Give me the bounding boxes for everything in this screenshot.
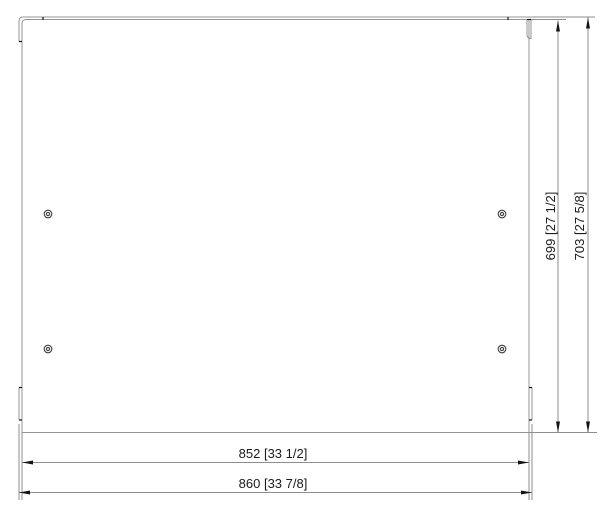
technical-drawing-canvas: 699 [27 1/2] 703 [27 5/8] 852 [33 1/2] 8… [0, 0, 614, 517]
top-flange-outer-edge [19, 17, 533, 42]
screw-hole-top-left [44, 210, 52, 218]
panel-face [22, 20, 529, 433]
dimension-width-inner: 852 [33 1/2] [22, 446, 529, 465]
panel-outline [19, 17, 533, 433]
dimension-width-outer: 860 [33 7/8] [19, 476, 532, 495]
dimension-height-outer: 703 [27 5/8] [572, 18, 590, 433]
arrowhead-up-icon [586, 18, 590, 29]
drawing-svg: 699 [27 1/2] 703 [27 5/8] 852 [33 1/2] 8… [0, 0, 614, 517]
extension-lines [19, 17, 597, 500]
arrowhead-left-icon [22, 461, 33, 465]
screw-hole-bottom-right [498, 345, 506, 353]
arrowhead-down-icon [556, 422, 560, 433]
dimension-height-inner: 699 [27 1/2] [543, 21, 560, 433]
screw-hole-top-right [498, 210, 506, 218]
arrowhead-right-icon [521, 491, 532, 495]
arrowhead-up-icon [556, 21, 560, 32]
dim-width-inner-label: 852 [33 1/2] [239, 446, 308, 461]
dim-height-inner-label: 699 [27 1/2] [543, 192, 558, 261]
arrowhead-left-icon [19, 491, 30, 495]
screw-hole-bottom-left [44, 345, 52, 353]
arrowhead-right-icon [518, 461, 529, 465]
dim-width-outer-label: 860 [33 7/8] [239, 476, 308, 491]
dim-height-outer-label: 703 [27 5/8] [572, 192, 587, 261]
bend-seam-marks [19, 17, 532, 420]
arrowhead-down-icon [586, 422, 590, 433]
mounting-holes [44, 210, 506, 353]
